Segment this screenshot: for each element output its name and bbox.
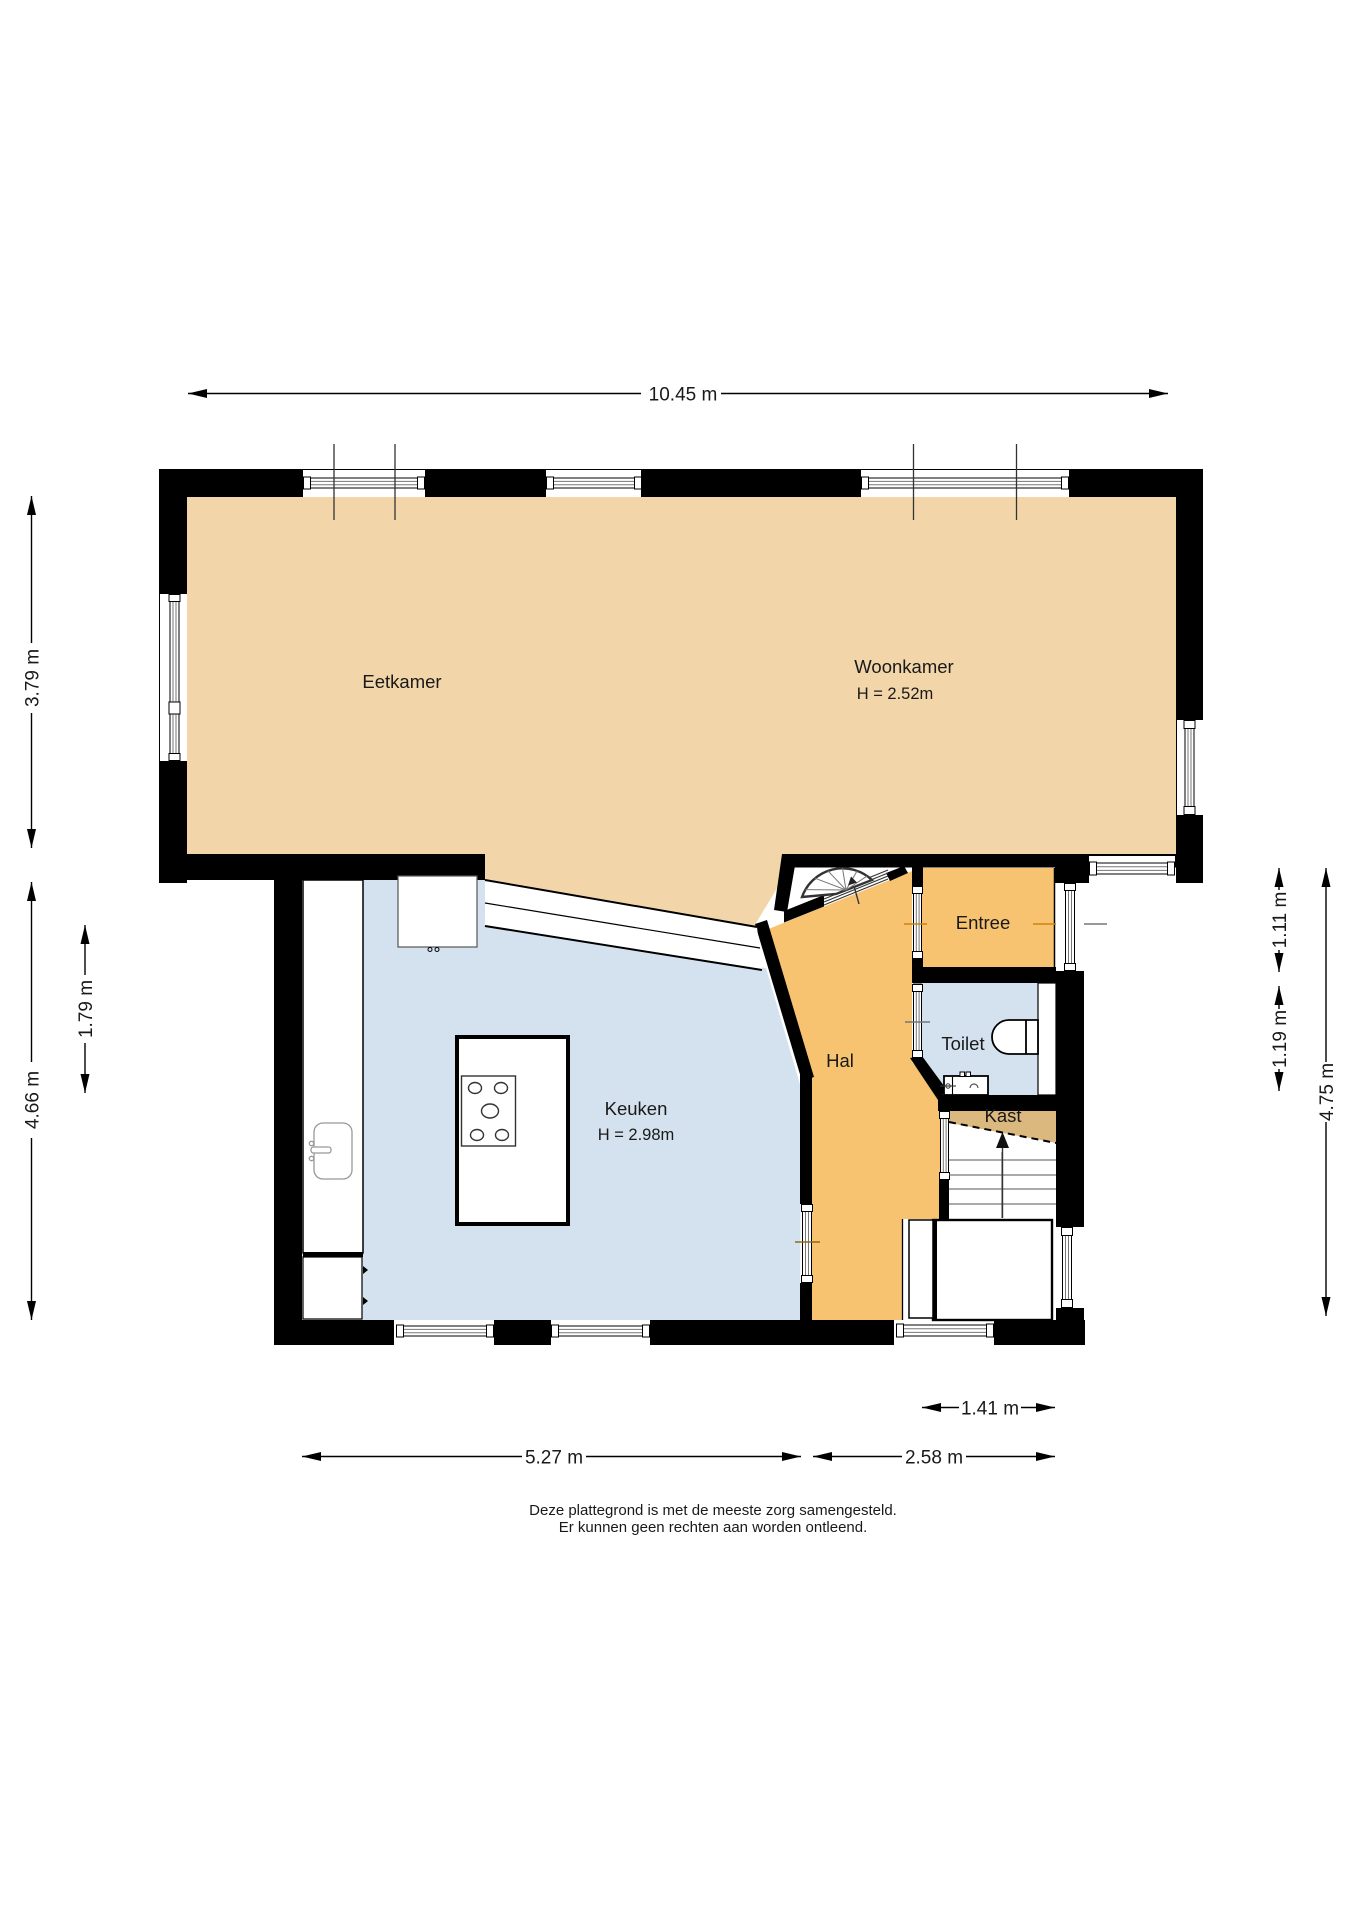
svg-text:1.19 m: 1.19 m xyxy=(1270,1010,1291,1068)
svg-text:1.79 m: 1.79 m xyxy=(76,980,97,1038)
svg-text:4.66 m: 4.66 m xyxy=(22,1071,43,1129)
svg-text:2.58 m: 2.58 m xyxy=(905,1447,963,1468)
svg-text:4.75 m: 4.75 m xyxy=(1317,1063,1338,1121)
svg-text:5.27 m: 5.27 m xyxy=(525,1447,583,1468)
svg-text:1.11 m: 1.11 m xyxy=(1270,892,1291,949)
svg-text:Keuken: Keuken xyxy=(605,1098,668,1119)
svg-text:H = 2.52m: H = 2.52m xyxy=(857,685,934,703)
svg-text:Eetkamer: Eetkamer xyxy=(362,671,441,692)
svg-text:3.79 m: 3.79 m xyxy=(22,649,43,707)
svg-text:Toilet: Toilet xyxy=(941,1033,984,1054)
svg-text:Kast: Kast xyxy=(984,1105,1021,1126)
svg-text:Entree: Entree xyxy=(956,912,1011,933)
svg-text:1.41 m: 1.41 m xyxy=(961,1398,1019,1419)
svg-text:10.45 m: 10.45 m xyxy=(649,384,718,405)
svg-text:H = 2.98m: H = 2.98m xyxy=(598,1126,675,1144)
svg-text:Deze plattegrond is met de mee: Deze plattegrond is met de meeste zorg s… xyxy=(529,1502,897,1519)
svg-text:Hal: Hal xyxy=(826,1050,854,1071)
svg-text:Woonkamer: Woonkamer xyxy=(854,656,953,677)
svg-text:Er kunnen geen rechten aan wor: Er kunnen geen rechten aan worden ontlee… xyxy=(559,1519,868,1536)
